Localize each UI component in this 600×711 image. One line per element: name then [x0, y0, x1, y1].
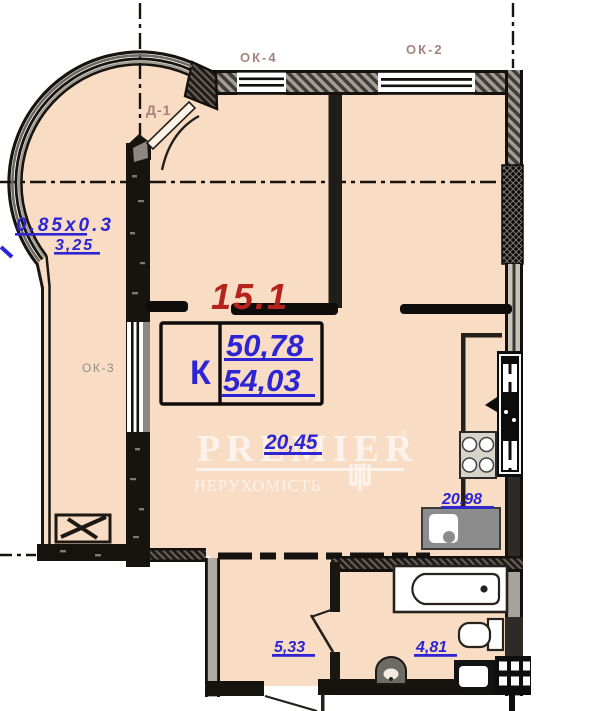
svg-text:5,33: 5,33 [274, 639, 305, 656]
svg-text:20,98: 20,98 [441, 491, 482, 508]
svg-text:НЕРУХОМІСТЬ: НЕРУХОМІСТЬ [194, 476, 321, 495]
svg-text:Д-1: Д-1 [146, 102, 171, 118]
svg-text:50,78: 50,78 [226, 328, 304, 363]
svg-text:ОК-3: ОК-3 [82, 361, 115, 375]
svg-text:ОК-2: ОК-2 [406, 42, 444, 57]
svg-text:ОК-4: ОК-4 [240, 50, 278, 65]
svg-text:0.85х0.3: 0.85х0.3 [16, 215, 114, 236]
svg-text:54,03: 54,03 [223, 363, 301, 398]
svg-text:4,81: 4,81 [415, 639, 447, 656]
svg-text:®: ® [399, 428, 407, 440]
svg-text:15.1: 15.1 [211, 276, 289, 317]
svg-text:3,25: 3,25 [55, 237, 94, 254]
svg-text:20,45: 20,45 [264, 431, 318, 454]
svg-text:К: К [190, 354, 211, 392]
